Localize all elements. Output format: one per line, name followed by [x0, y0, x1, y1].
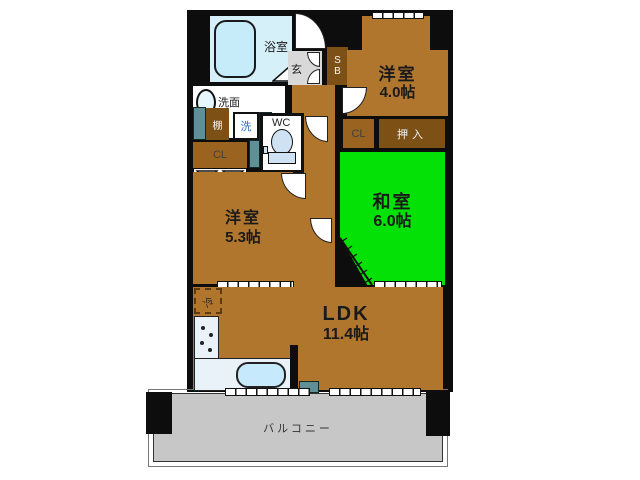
- teal-cabinet-1: [193, 107, 206, 140]
- washitsu-name: 和室: [373, 192, 413, 213]
- shoebox: S B: [327, 47, 348, 85]
- room-western1: 洋室 4.0帖: [347, 50, 448, 116]
- oshiire-label: 押入: [397, 126, 427, 142]
- room-genkan: 玄: [288, 51, 322, 85]
- room-western2: 洋室 5.3帖: [193, 172, 293, 284]
- closet-top-label: CL: [351, 128, 365, 140]
- western1-size: 4.0帖: [380, 84, 416, 101]
- western2-name: 洋室: [225, 210, 261, 228]
- room-wc: WC: [260, 113, 304, 173]
- closet-top: CL: [343, 119, 374, 148]
- shoebox-label-b: B: [334, 66, 341, 77]
- bathtub-icon: [214, 20, 256, 78]
- toilet-handle-icon: [263, 146, 268, 154]
- genkan-door-arc-upper-icon: [307, 52, 320, 67]
- genkan-label: 玄: [291, 61, 302, 77]
- bathroom-label: 浴室: [264, 38, 288, 55]
- washer: 洗: [233, 112, 259, 140]
- toilet-tank-icon: [268, 152, 296, 164]
- closet-left-label: CL: [213, 149, 227, 161]
- shoebox-label-s: S: [334, 55, 341, 66]
- balcony-window-right-icon: [329, 388, 421, 396]
- balcony-label: バルコニー: [263, 420, 333, 436]
- washitsu-corner-hatch-icon: [334, 232, 378, 290]
- closet-left: CL: [193, 142, 247, 168]
- kitchen-counter-stove: [194, 316, 219, 360]
- pillar-bottom-right: [426, 390, 450, 436]
- ldk-name: LDK: [291, 303, 401, 326]
- ldk-size: 11.4帖: [291, 326, 401, 344]
- refrigerator-space: 冷: [194, 288, 222, 314]
- room-western1-notch: [362, 16, 430, 52]
- balcony-window-left-icon: [225, 388, 310, 396]
- genkan-door-arc-lower-icon: [307, 69, 320, 84]
- wc-label: WC: [272, 117, 290, 129]
- pillar-bottom-left: [146, 392, 172, 434]
- western1-window-icon: [372, 12, 424, 19]
- refrigerator-label: 冷: [199, 292, 216, 310]
- room-balcony: バルコニー: [153, 393, 443, 462]
- teal-cabinet-3: [249, 140, 260, 168]
- washer-label: 洗: [241, 118, 252, 134]
- shelf-label: 棚: [213, 117, 223, 132]
- floor-plan: バルコニー 浴室 玄 S B 洋室 4.0帖 CL 押入 和室: [0, 0, 640, 480]
- kitchen-sink-icon: [236, 362, 286, 388]
- counter-end-wall: [290, 345, 298, 392]
- oshiire: 押入: [379, 119, 445, 148]
- western1-name: 洋室: [379, 65, 417, 85]
- shelf: 棚: [206, 108, 229, 140]
- washitsu-size: 6.0帖: [373, 213, 411, 231]
- western2-size: 5.3帖: [225, 229, 261, 246]
